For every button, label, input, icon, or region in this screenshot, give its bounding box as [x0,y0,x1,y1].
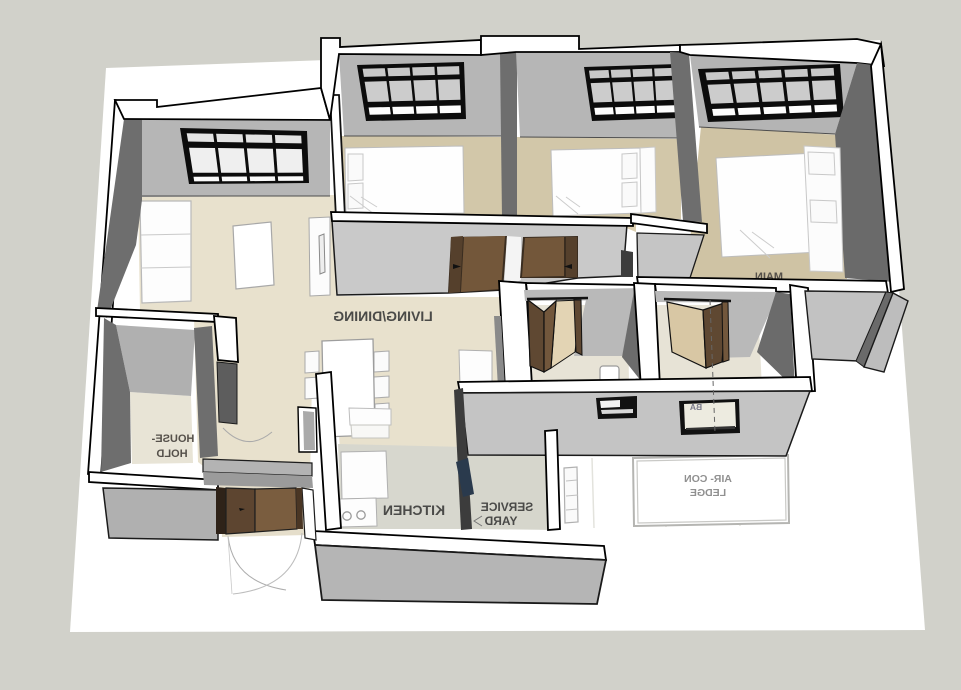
svg-text:KITCHEN: KITCHEN [383,502,445,518]
svg-text:HOLD: HOLD [156,448,187,460]
svg-text:HOUSE-: HOUSE- [151,433,194,445]
svg-text:LEDGE: LEDGE [690,487,726,499]
svg-text:BA: BA [690,402,702,412]
svg-text:YARD: YARD [484,514,517,528]
svg-text:AIR- CON: AIR- CON [684,473,732,485]
svg-text:SERVICE: SERVICE [481,500,533,514]
svg-text:LIVING/DINING: LIVING/DINING [333,308,433,324]
